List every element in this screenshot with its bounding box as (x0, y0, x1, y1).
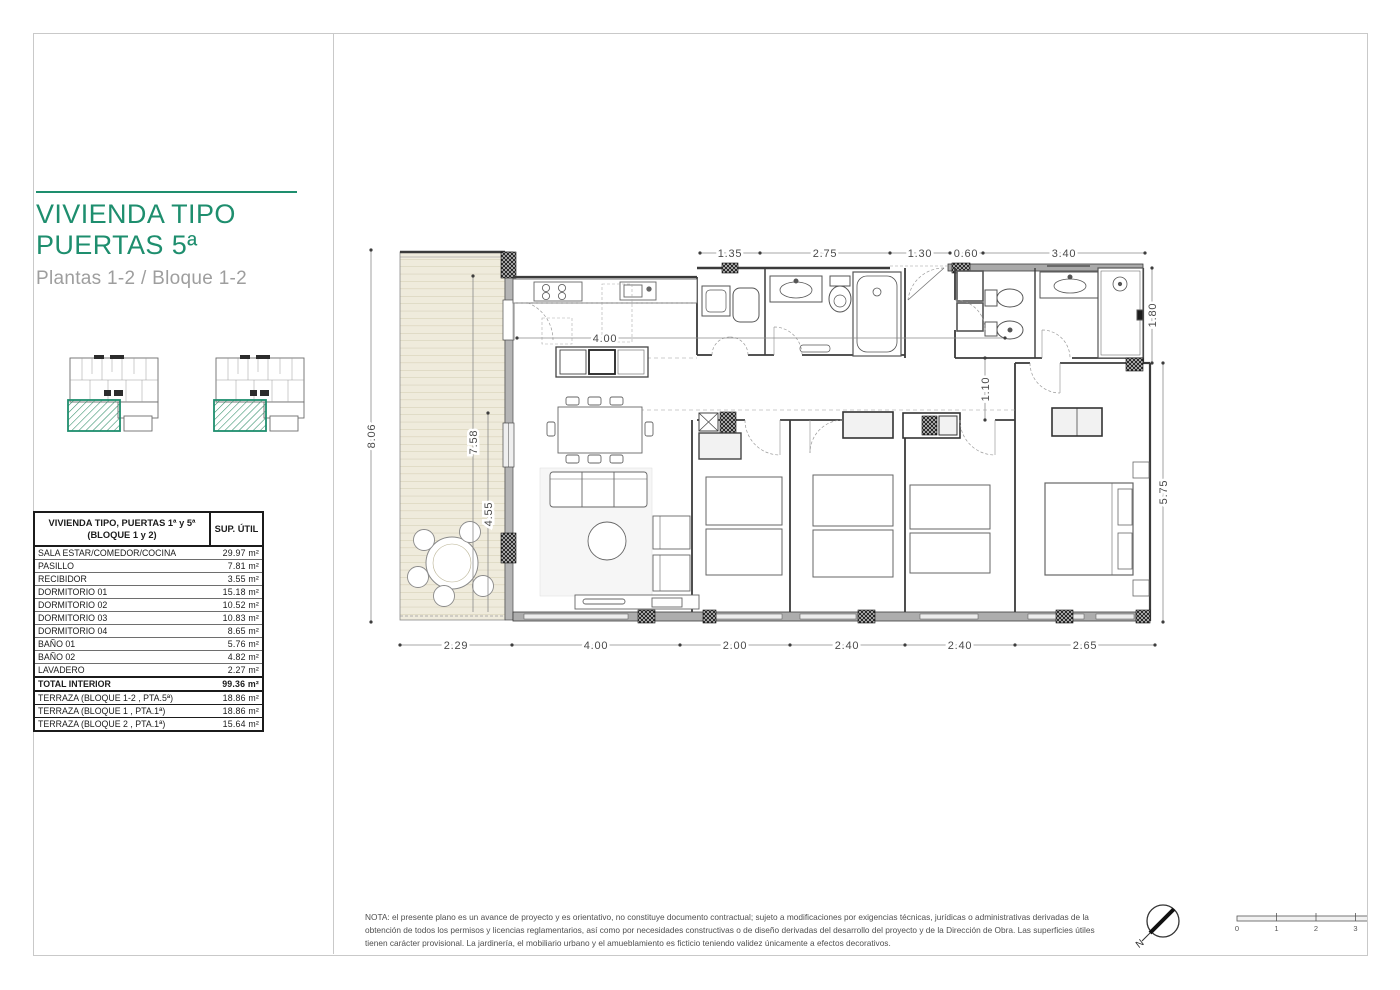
svg-text:3.40: 3.40 (1052, 248, 1077, 260)
living-room (540, 397, 699, 609)
title-line-1: VIVIENDA TIPO (36, 199, 236, 230)
armchair (653, 516, 690, 549)
water-heater (733, 288, 759, 322)
bidet (985, 322, 997, 336)
bed (813, 475, 893, 526)
table-row: TERRAZA (BLOQUE 2 , PTA.1ª)15.64 m² (34, 718, 263, 732)
bed (910, 485, 990, 529)
svg-text:2.40: 2.40 (835, 640, 860, 652)
svg-text:4.00: 4.00 (584, 640, 609, 652)
key-plans (60, 350, 314, 436)
bathroom-1 (770, 272, 901, 356)
dining-table (558, 407, 642, 453)
svg-text:8.06: 8.06 (366, 424, 378, 449)
table-row: BAÑO 024.82 m² (34, 651, 263, 664)
table-row: DORMITORIO 0210.52 m² (34, 599, 263, 612)
svg-text:2.29: 2.29 (444, 640, 469, 652)
highlighted-unit (214, 400, 266, 431)
svg-text:4.55: 4.55 (483, 502, 495, 527)
bed (706, 477, 782, 525)
stove (534, 282, 582, 301)
svg-text:4.00: 4.00 (593, 333, 618, 345)
table-row: DORMITORIO 0115.18 m² (34, 586, 263, 599)
bottom-facade (513, 610, 1150, 623)
areas-table: VIVIENDA TIPO, PUERTAS 1ª y 5ª (BLOQUE 1… (33, 511, 264, 732)
page-title: VIVIENDA TIPO PUERTAS 5ª (36, 199, 236, 262)
highlighted-unit (68, 400, 120, 431)
terrace (400, 252, 505, 620)
svg-text:1.30: 1.30 (908, 248, 933, 260)
table-row: TERRAZA (BLOQUE 1-2 , PTA.5ª)18.86 m² (34, 691, 263, 705)
floor-plan: 1.35 2.75 1.30 0.60 3.40 2.29 4.00 2.00 … (333, 33, 1367, 955)
toilet (985, 290, 997, 306)
table-row: DORMITORIO 0310.83 m² (34, 612, 263, 625)
kitchen (513, 279, 697, 377)
table-total-row: TOTAL INTERIOR99.36 m² (34, 677, 263, 691)
svg-text:1: 1 (1274, 924, 1278, 933)
bathroom-2 (955, 266, 1143, 371)
svg-text:2.40: 2.40 (948, 640, 973, 652)
laundry-room (702, 286, 759, 355)
page-subtitle: Plantas 1-2 / Bloque 1-2 (36, 268, 247, 290)
svg-text:1.35: 1.35 (718, 248, 743, 260)
table-row: LAVADERO2.27 m² (34, 664, 263, 678)
svg-text:5.75: 5.75 (1158, 480, 1170, 505)
table-row: PASILLO7.81 m² (34, 560, 263, 573)
key-plan-block-1 (60, 350, 168, 436)
table-row: DORMITORIO 048.65 m² (34, 625, 263, 638)
key-plan-block-2 (206, 350, 314, 436)
armchair (653, 555, 690, 591)
accent-rule (36, 191, 297, 193)
wardrobes (699, 408, 1102, 459)
bedrooms (706, 462, 1149, 596)
pouf (588, 522, 626, 560)
svg-text:1.80: 1.80 (1147, 303, 1159, 328)
toilet (830, 276, 850, 286)
svg-text:N: N (1134, 938, 1146, 951)
scale-bar: 0 1 2 3 4 (1235, 913, 1367, 933)
table-row: SALA ESTAR/COMEDOR/COCINA29.97 m² (34, 546, 263, 560)
table-row: BAÑO 015.76 m² (34, 638, 263, 651)
svg-text:0: 0 (1235, 924, 1239, 933)
title-line-2: PUERTAS 5ª (36, 230, 236, 261)
svg-text:7.58: 7.58 (468, 430, 480, 455)
svg-text:2.75: 2.75 (813, 248, 838, 260)
plan-sheet: VIVIENDA TIPO PUERTAS 5ª Plantas 1-2 / B… (0, 0, 1400, 990)
table-header-sup: SUP. ÚTIL (210, 512, 263, 546)
svg-text:2: 2 (1314, 924, 1318, 933)
table-row: RECIBIDOR3.55 m² (34, 573, 263, 586)
sofa (550, 472, 647, 507)
table-header-name: VIVIENDA TIPO, PUERTAS 1ª y 5ª (BLOQUE 1… (34, 512, 210, 546)
svg-text:2.00: 2.00 (723, 640, 748, 652)
disclaimer-note: NOTA: el presente plano es un avance de … (365, 911, 1102, 950)
svg-text:1.10: 1.10 (980, 377, 992, 402)
compass-icon: N (1134, 905, 1179, 951)
bedroom-doors (745, 363, 1060, 455)
svg-text:3: 3 (1353, 924, 1357, 933)
svg-text:2.65: 2.65 (1073, 640, 1098, 652)
table-row: TERRAZA (BLOQUE 1 , PTA.1ª)18.86 m² (34, 705, 263, 718)
svg-text:0.60: 0.60 (954, 248, 979, 260)
